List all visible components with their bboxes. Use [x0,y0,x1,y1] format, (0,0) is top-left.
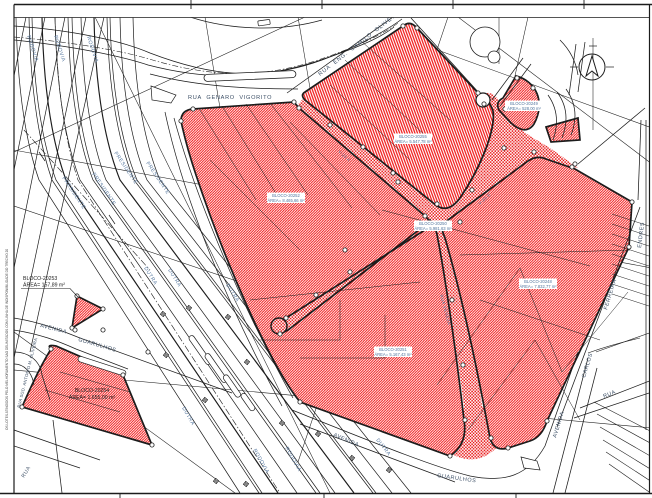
svg-text:BLOCO-20248: BLOCO-20248 [524,279,552,284]
svg-text:ÁREA= 5.981,63 m²: ÁREA= 5.981,63 m² [414,226,452,231]
svg-text:ÁREA= 7.832,77 m²: ÁREA= 7.832,77 m² [519,284,557,289]
svg-text:BLOCO-20253: BLOCO-20253 [23,276,57,282]
svg-text:ÁREA= 8.465,66 m²: ÁREA= 8.465,66 m² [267,198,305,203]
svg-text:ÁREA= 5.167,43 m²: ÁREA= 5.167,43 m² [374,352,412,357]
svg-text:BLOCO-20251: BLOCO-20251 [379,347,407,352]
svg-text:BLOCO-20249: BLOCO-20249 [510,101,538,106]
svg-text:ÁREA= 528,00 m²: ÁREA= 528,00 m² [507,106,541,111]
svg-text:ÁREA= 5.547,78 m²: ÁREA= 5.547,78 m² [394,139,432,144]
svg-text:BLOCO-20252: BLOCO-20252 [272,193,300,198]
svg-text:ÁREA= 1.655,00 m²: ÁREA= 1.655,00 m² [69,394,116,401]
svg-text:OS LOTES ATINGIDOS PELO MELHOR: OS LOTES ATINGIDOS PELO MELHORAMENTO SAO… [5,249,9,430]
svg-text:ÁREA= 157,89 m²: ÁREA= 157,89 m² [23,282,65,289]
svg-text:BLOCO-20250: BLOCO-20250 [419,221,447,226]
svg-text:BLOCO-20254: BLOCO-20254 [75,388,109,394]
svg-text:RUA GENARO VIGORITO: RUA GENARO VIGORITO [188,95,272,101]
svg-text:BLOCO-20255: BLOCO-20255 [399,134,427,139]
